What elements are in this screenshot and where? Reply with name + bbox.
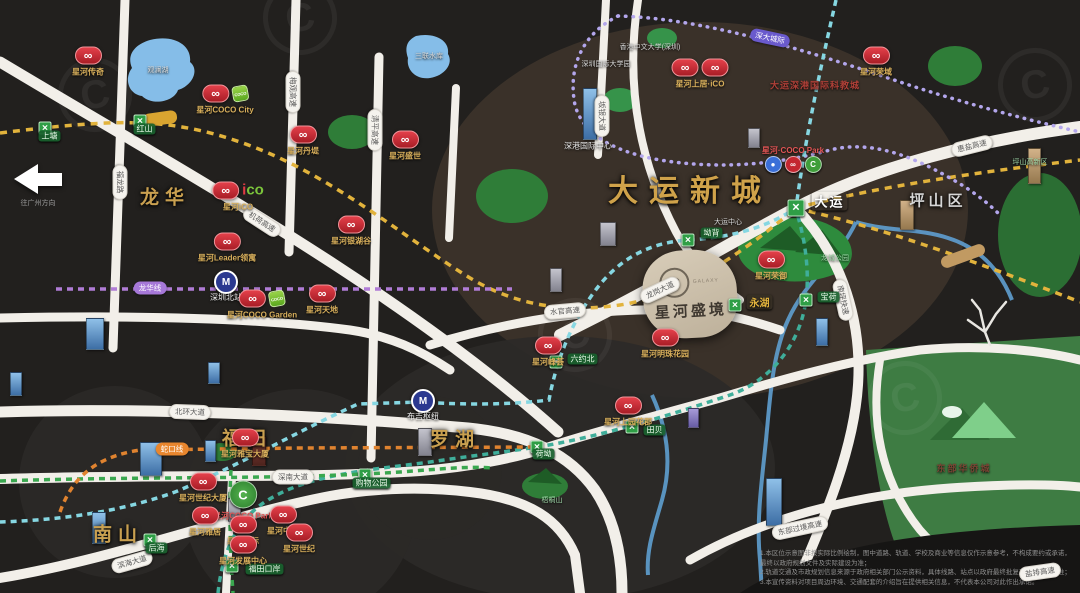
metro-station-label: 后海 (146, 543, 168, 554)
west-arrow-caption: 往广州方向 (14, 198, 62, 208)
poi-badge[interactable]: ∞星河Leader领寓 (198, 233, 256, 264)
poi-badge[interactable]: ∞星河世纪 (283, 524, 315, 555)
poi-badge[interactable]: ∞星河丹堤 (287, 126, 319, 157)
galaxy-badge-icon: ∞ (202, 85, 229, 103)
area-label: 坪山高新区 (1013, 157, 1048, 167)
galaxy-chain-icon: ∞ (544, 341, 553, 351)
galaxy-badge-icon: ∞ (213, 233, 240, 251)
poi-label: 星河上居·iCO (672, 79, 729, 90)
galaxy-chain-icon: ∞ (279, 510, 288, 520)
poi-label: 星河Leader领寓 (198, 253, 256, 264)
poi-label: 星河COCO City (196, 105, 253, 116)
poi-badge[interactable]: ∞COCO星河COCO Garden (227, 290, 297, 321)
district-label: 大运新城 (608, 166, 772, 210)
metro-station-icon: ✕ (682, 234, 695, 247)
metro-station-icon: ✕ (800, 294, 813, 307)
poi-badge[interactable]: ∞星河银湖谷 (331, 216, 371, 247)
metro-station-label: 永湖 (747, 295, 773, 310)
poi-label: 星河银湖谷 (331, 236, 371, 247)
galaxy-badge-icon: ∞ (758, 251, 785, 269)
metro-station-label: 大运 (812, 192, 848, 211)
watermark-logo: C (991, 41, 1079, 129)
galaxy-badge-icon: ∞ (392, 131, 419, 149)
project-name: 星河盛境 (654, 298, 727, 323)
coco-city-icon: COCO (268, 289, 287, 308)
poi-label: 星河荣域 (860, 67, 892, 78)
galaxy-chain-icon: ∞ (401, 135, 410, 145)
poi-badge[interactable]: ∞星河雅宝大厦 (221, 429, 269, 460)
disclaimer-line: 1.本区位示意图非按实际比例绘制，图中道路、轨道、学校及商业等信息仅作示意参考，… (760, 549, 1072, 568)
galaxy-chain-icon: ∞ (711, 63, 720, 73)
building-icon (10, 372, 22, 396)
metro-line-label-pill: 蛇口线 (156, 443, 189, 456)
area-label: 龙城公园 (821, 253, 849, 263)
metro-station-label: 坳背 (701, 228, 723, 239)
building-icon (600, 222, 616, 246)
metro-station[interactable]: ✕ 坳背 (682, 234, 695, 247)
building-icon (86, 318, 104, 350)
district-label: 罗湖 (430, 425, 480, 452)
poi-label: 星河世纪 (283, 544, 315, 555)
poi-badge[interactable]: ∞星河上园花郡 (604, 397, 652, 428)
poi-badge[interactable]: ∞星河雅居 (189, 507, 221, 538)
road-label-pill: 福龙路 (113, 165, 128, 200)
metro-station[interactable]: ✕ 大运 (788, 200, 805, 217)
metro-station-label: 购物公园 (353, 478, 391, 489)
poi-label: 星河盛世 (389, 151, 421, 162)
road-label-pill: 清平高速 (368, 109, 383, 151)
ico-logo: ico (242, 185, 264, 197)
galaxy-chain-icon: ∞ (318, 289, 327, 299)
metro-line-label-pill: 深大城际 (749, 27, 791, 48)
galaxy-chain-icon: ∞ (767, 255, 776, 265)
area-label: 深圳国际大学园 (582, 59, 631, 69)
label-overlay: C C C C C C GALAXY 星河盛境 往广州方向 1.本区位示意图非按… (0, 0, 1080, 593)
galaxy-chain-icon: ∞ (211, 89, 220, 99)
galaxy-badge-icon: ∞ (232, 429, 259, 447)
building-icon (748, 128, 760, 148)
galaxy-badge-icon: ∞ (652, 329, 679, 347)
poi-badge[interactable]: ∞星河发展中心 (219, 536, 267, 567)
west-direction-indicator: 往广州方向 (14, 164, 62, 208)
galaxy-badge-icon: ∞ (290, 126, 317, 144)
area-label: 大运深港国际科教城 (770, 79, 860, 92)
galaxy-chain-icon: ∞ (221, 186, 230, 196)
galaxy-badge-icon: ∞ (338, 216, 365, 234)
galaxy-chain-icon: ∞ (201, 511, 210, 521)
building-icon (816, 318, 828, 346)
galaxy-badge-icon: ∞ (239, 290, 266, 308)
building-icon (688, 408, 699, 428)
metro-station-label: 红山 (134, 124, 156, 135)
poi-label: 星河峰荟 (532, 357, 564, 368)
poi-badge[interactable]: 星河·COCO Park ● ∞ C (762, 143, 824, 173)
map-canvas: C C C C C C GALAXY 星河盛境 往广州方向 1.本区位示意图非按… (0, 0, 1080, 593)
metro-station-label: 六约北 (568, 354, 598, 365)
galaxy-badge-icon: ∞ (784, 156, 801, 173)
coco-park-icon: C (804, 156, 821, 173)
poi-label: 星河iCO (212, 202, 264, 213)
galaxy-chain-icon: ∞ (239, 520, 248, 530)
building-icon (550, 268, 562, 292)
galaxy-chain-icon: ∞ (241, 433, 250, 443)
metro-station[interactable]: ✕ 后海 (144, 534, 157, 547)
poi-label: 星河丹堤 (287, 146, 319, 157)
metro-station[interactable]: ✕ 购物公园 (359, 469, 372, 482)
coco-park-icon: C (229, 481, 257, 509)
poi-label: 星河传奇 (72, 67, 104, 78)
galaxy-badge-icon: ∞ (230, 516, 257, 534)
galaxy-chain-icon: ∞ (624, 401, 633, 411)
poi-label: 星河发展中心 (219, 556, 267, 567)
galaxy-badge-icon: ∞ (230, 536, 257, 554)
galaxy-chain-icon: ∞ (661, 333, 670, 343)
galaxy-badge-icon: ∞ (75, 47, 102, 65)
galaxy-badge-icon: ∞ (192, 507, 219, 525)
district-label: 坪山区 (909, 190, 966, 211)
galaxy-chain-icon: ∞ (223, 237, 232, 247)
galaxy-chain-icon: ∞ (84, 51, 93, 61)
galaxy-chain-icon: ∞ (239, 540, 248, 550)
poi-badge[interactable]: ∞∞星河上居·iCO (672, 59, 729, 90)
poi-badge[interactable]: ∞星河明珠花园 (641, 329, 689, 360)
road-label-pill: 坂银大道 (595, 95, 610, 137)
metro-station-icon: ✕ (788, 200, 805, 217)
road-label-pill: 梅观高速 (286, 71, 301, 113)
galaxy-badge-icon: ∞ (309, 285, 336, 303)
building-icon (205, 440, 216, 462)
area-label: 三联水库 (415, 51, 443, 61)
poi-label: 星河上园花郡 (604, 417, 652, 428)
poi-badge[interactable]: ∞星河盛世 (389, 131, 421, 162)
area-label: 观澜湖 (148, 65, 169, 75)
area-label: 香港中文大学(深圳) (620, 42, 681, 52)
metro-station[interactable]: ✕ 永湖 (729, 299, 742, 312)
area-label: 东部华侨城 (936, 462, 991, 475)
road-label-pill: 惠盐高速 (950, 134, 994, 159)
galaxy-chain-icon: ∞ (347, 220, 356, 230)
poi-label: 星河明珠花园 (641, 349, 689, 360)
metro-station[interactable]: ✕ 荷坳 (531, 441, 544, 454)
galaxy-badge-icon: ∞ (535, 337, 562, 355)
road-label-pill: 深南大道 (272, 470, 314, 485)
building-icon (766, 478, 782, 526)
galaxy-badge-icon: ∞ (615, 397, 642, 415)
poi-badge[interactable]: ∞星河荣御 (755, 251, 787, 282)
poi-badge[interactable]: ∞星河天地 (306, 285, 338, 316)
metro-station-icon: ✕ (729, 299, 742, 312)
area-label: 梧桐山 (542, 495, 563, 505)
metro-station-label: 荷坳 (533, 449, 555, 460)
galaxy-chain-icon: ∞ (248, 294, 257, 304)
poi-label: 星河·COCO Park (762, 145, 824, 156)
metro-hub-icon: M (411, 389, 435, 413)
galaxy-badge-icon: ∞ (672, 59, 699, 77)
watermark-logo: C (256, 0, 344, 62)
building-icon (208, 362, 220, 384)
metro-station-label: 宝荷 (818, 292, 840, 303)
poi-badge[interactable]: ∞COCO星河COCO City (196, 85, 253, 116)
poi-badge[interactable]: ∞ico星河iCO (212, 182, 264, 213)
galaxy-badge-icon: ∞ (702, 59, 729, 77)
galaxy-chain-icon: ∞ (199, 477, 208, 487)
west-arrow-icon (14, 164, 62, 194)
metro-station[interactable]: ✕ 红山 (134, 115, 147, 128)
poi-badge[interactable]: ∞星河荣域 (860, 47, 892, 78)
poi-badge[interactable]: ∞星河传奇 (72, 47, 104, 78)
road-label-pill: 北环大道 (169, 404, 211, 420)
poi-badge[interactable]: ∞星河峰荟 (532, 337, 564, 368)
metro-station[interactable]: ✕ 上塘 (39, 122, 52, 135)
project-logo-caption: GALAXY (693, 277, 719, 284)
galaxy-chain-icon: ∞ (872, 51, 881, 61)
watermark-logo: C (861, 354, 949, 442)
galaxy-badge-icon: ∞ (270, 506, 297, 524)
galaxy-badge-icon: ∞ (212, 182, 239, 200)
district-label: 龙华 (140, 183, 190, 210)
poi-label: 星河COCO Garden (227, 310, 297, 321)
galaxy-badge-icon: ∞ (863, 47, 890, 65)
metro-line-label-pill: 龙华线 (134, 282, 167, 295)
galaxy-chain-icon: ∞ (299, 130, 308, 140)
poi-label: 星河荣御 (755, 271, 787, 282)
poi-label: 星河雅居 (189, 527, 221, 538)
metro-hub-station[interactable]: M 布吉枢纽 (411, 389, 435, 413)
area-label: 大运中心 (714, 217, 742, 227)
galaxy-chain-icon: ∞ (295, 528, 304, 538)
metro-hub-label: 布吉枢纽 (407, 411, 439, 422)
mall-icon: ● (764, 156, 781, 173)
district-label: 南山 (93, 520, 143, 547)
galaxy-chain-icon: ∞ (681, 63, 690, 73)
metro-station[interactable]: ✕ 宝荷 (800, 294, 813, 307)
metro-station-label: 上塘 (39, 131, 61, 142)
coco-city-icon: COCO (231, 84, 250, 103)
area-label: 深港国际中心 (564, 141, 612, 152)
poi-label: 星河天地 (306, 305, 338, 316)
galaxy-badge-icon: ∞ (286, 524, 313, 542)
poi-label: 星河雅宝大厦 (221, 449, 269, 460)
